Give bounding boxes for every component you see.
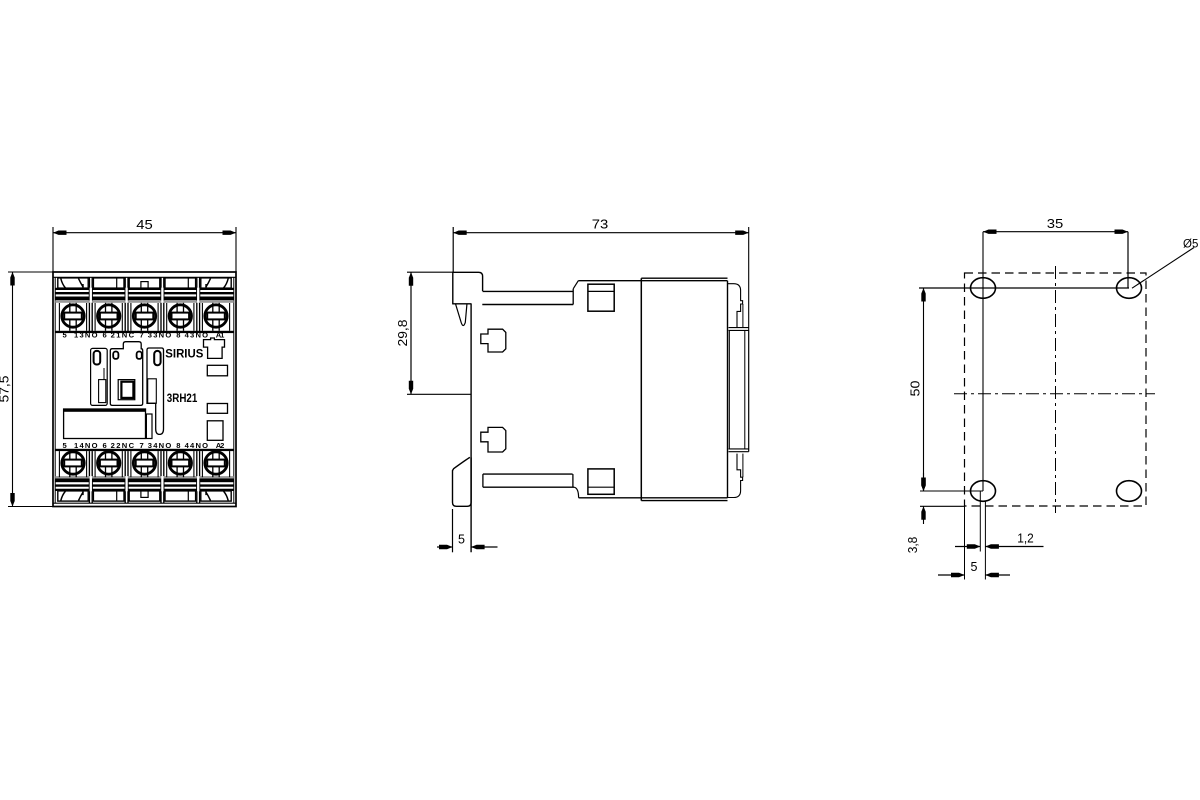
svg-text:3RH21: 3RH21	[167, 393, 198, 405]
svg-text:22NC: 22NC	[111, 441, 135, 450]
svg-text:Ø5: Ø5	[1183, 239, 1198, 251]
svg-text:14NO: 14NO	[74, 441, 98, 450]
svg-text:7: 7	[140, 331, 144, 340]
svg-text:6: 6	[103, 331, 107, 340]
svg-text:45: 45	[136, 218, 153, 232]
svg-text:73: 73	[592, 218, 609, 232]
svg-text:8: 8	[176, 331, 180, 340]
svg-text:8: 8	[176, 441, 180, 450]
svg-text:13NO: 13NO	[74, 331, 98, 340]
svg-text:SIRIUS: SIRIUS	[165, 349, 203, 361]
svg-text:7: 7	[140, 441, 144, 450]
svg-text:29,8: 29,8	[396, 319, 410, 346]
svg-text:5: 5	[971, 560, 978, 574]
svg-text:44NO: 44NO	[185, 441, 209, 450]
svg-text:57,5: 57,5	[0, 375, 12, 402]
svg-text:A2: A2	[216, 441, 225, 450]
svg-text:A1: A1	[216, 331, 225, 340]
svg-text:3,8: 3,8	[906, 537, 920, 554]
svg-text:5: 5	[458, 533, 465, 547]
svg-text:21NC: 21NC	[111, 331, 135, 340]
svg-text:50: 50	[909, 380, 923, 396]
svg-text:34NO: 34NO	[148, 441, 172, 450]
svg-text:35: 35	[1047, 217, 1064, 231]
svg-text:43NO: 43NO	[185, 331, 209, 340]
svg-text:1,2: 1,2	[1017, 532, 1034, 546]
svg-text:33NO: 33NO	[148, 331, 172, 340]
svg-text:6: 6	[103, 441, 107, 450]
